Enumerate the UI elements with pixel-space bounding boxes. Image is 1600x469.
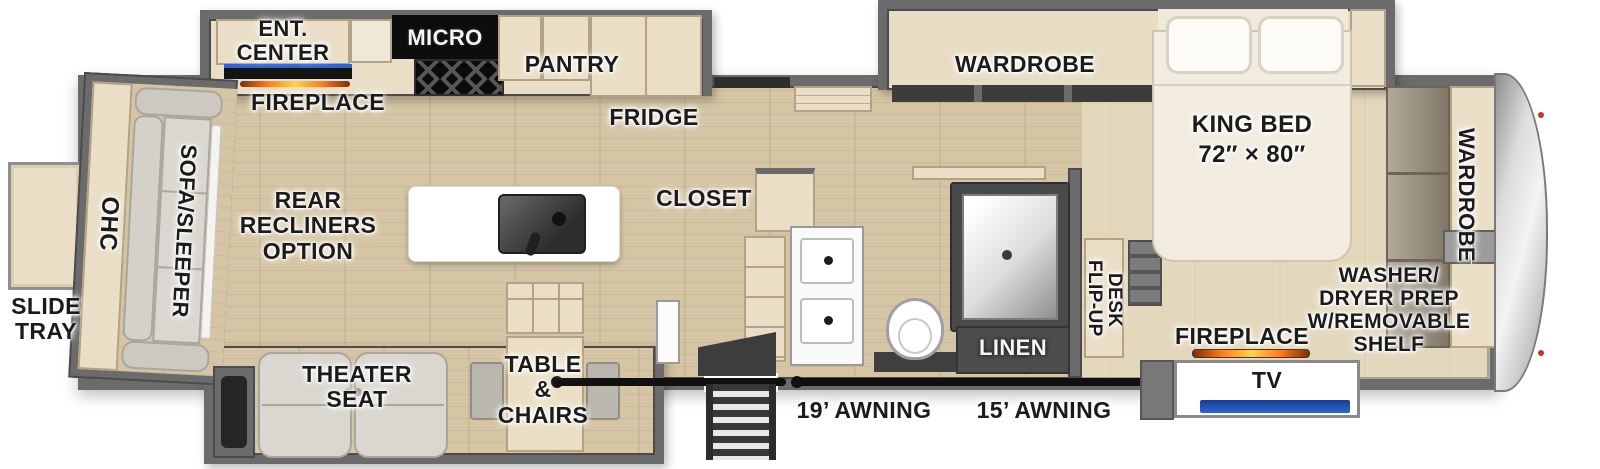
slide-mechanism-block <box>1140 360 1174 420</box>
dinette-hutch <box>506 282 584 334</box>
closet-cabinet <box>755 168 815 232</box>
fireplace-strip-bedroom <box>1192 349 1310 358</box>
under-wardrobe-drawers <box>892 85 1160 102</box>
range-cooktop <box>414 59 504 96</box>
rear-slide: OHC SOFA/SLEEPER <box>68 72 238 386</box>
wardrobe-bedroom-label: WARDROBE <box>945 52 1105 77</box>
entertainment-tv <box>224 64 352 79</box>
table-chairs-label: TABLE & CHAIRS <box>455 352 631 428</box>
shower-door-hinge <box>1002 250 1012 260</box>
kitchen-counter <box>350 19 392 63</box>
bath-door <box>656 300 680 364</box>
ohc-label: OHC <box>87 172 124 274</box>
offdoor-window <box>714 77 790 88</box>
living-slide-window <box>221 376 247 448</box>
fireplace-living-label: FIREPLACE <box>243 90 393 115</box>
marker-light-bottom <box>1538 350 1544 356</box>
fireplace-strip-living <box>240 81 350 87</box>
bedside-cabinet <box>1350 9 1386 87</box>
bath-bedroom-wall <box>1068 168 1082 378</box>
slide-tray <box>8 162 82 290</box>
sink-drain <box>552 212 566 226</box>
marker-light-top <box>1538 112 1544 118</box>
awning-19-label: 19’ AWNING <box>788 398 940 423</box>
tv-label: TV <box>1174 368 1360 393</box>
ent-center-label: ENT. CENTER <box>214 17 352 65</box>
pillow-right <box>1258 16 1344 74</box>
pillow-left <box>1166 16 1252 74</box>
entry-steps <box>706 384 776 460</box>
awning-cap-15-left <box>791 376 803 388</box>
entry-landing <box>794 86 872 112</box>
faucet-dot-1 <box>824 256 833 265</box>
bath-shelf <box>912 166 1046 180</box>
flip-up-label: FLIP-UP <box>1084 242 1104 354</box>
bed-seam <box>1154 84 1350 86</box>
slide-tray-label: SLIDE TRAY <box>0 294 92 345</box>
theater-seat-label: THEATER SEAT <box>272 362 442 413</box>
floorplan-canvas: SLIDE TRAY OHC SOFA/SLEEPER ENT. CENTER … <box>0 0 1600 469</box>
island-sink <box>498 194 586 254</box>
awning-rail-15 <box>798 378 1162 386</box>
rear-recliners-label: REAR RECLINERS OPTION <box>238 188 378 264</box>
awning-15-label: 15’ AWNING <box>964 398 1124 423</box>
desk-label: DESK <box>1104 252 1124 348</box>
king-bed-label: KING BED 72″ × 80″ <box>1162 110 1342 170</box>
fridge-label: FRIDGE <box>600 105 708 130</box>
pantry-label: PANTRY <box>507 52 637 77</box>
toilet-seat-line <box>898 318 932 354</box>
micro-label: MICRO <box>392 26 498 50</box>
linen-label: LINEN <box>956 336 1070 360</box>
faucet-dot-2 <box>824 316 833 325</box>
front-cap <box>1494 73 1548 392</box>
closet-label: CLOSET <box>652 186 756 211</box>
fireplace-bedroom-label: FIREPLACE <box>1172 324 1312 349</box>
washer-dryer-label: WASHER/ DRYER PREP W/REMOVABLE SHELF <box>1298 264 1480 356</box>
exterior-tv-screen <box>1200 400 1350 413</box>
